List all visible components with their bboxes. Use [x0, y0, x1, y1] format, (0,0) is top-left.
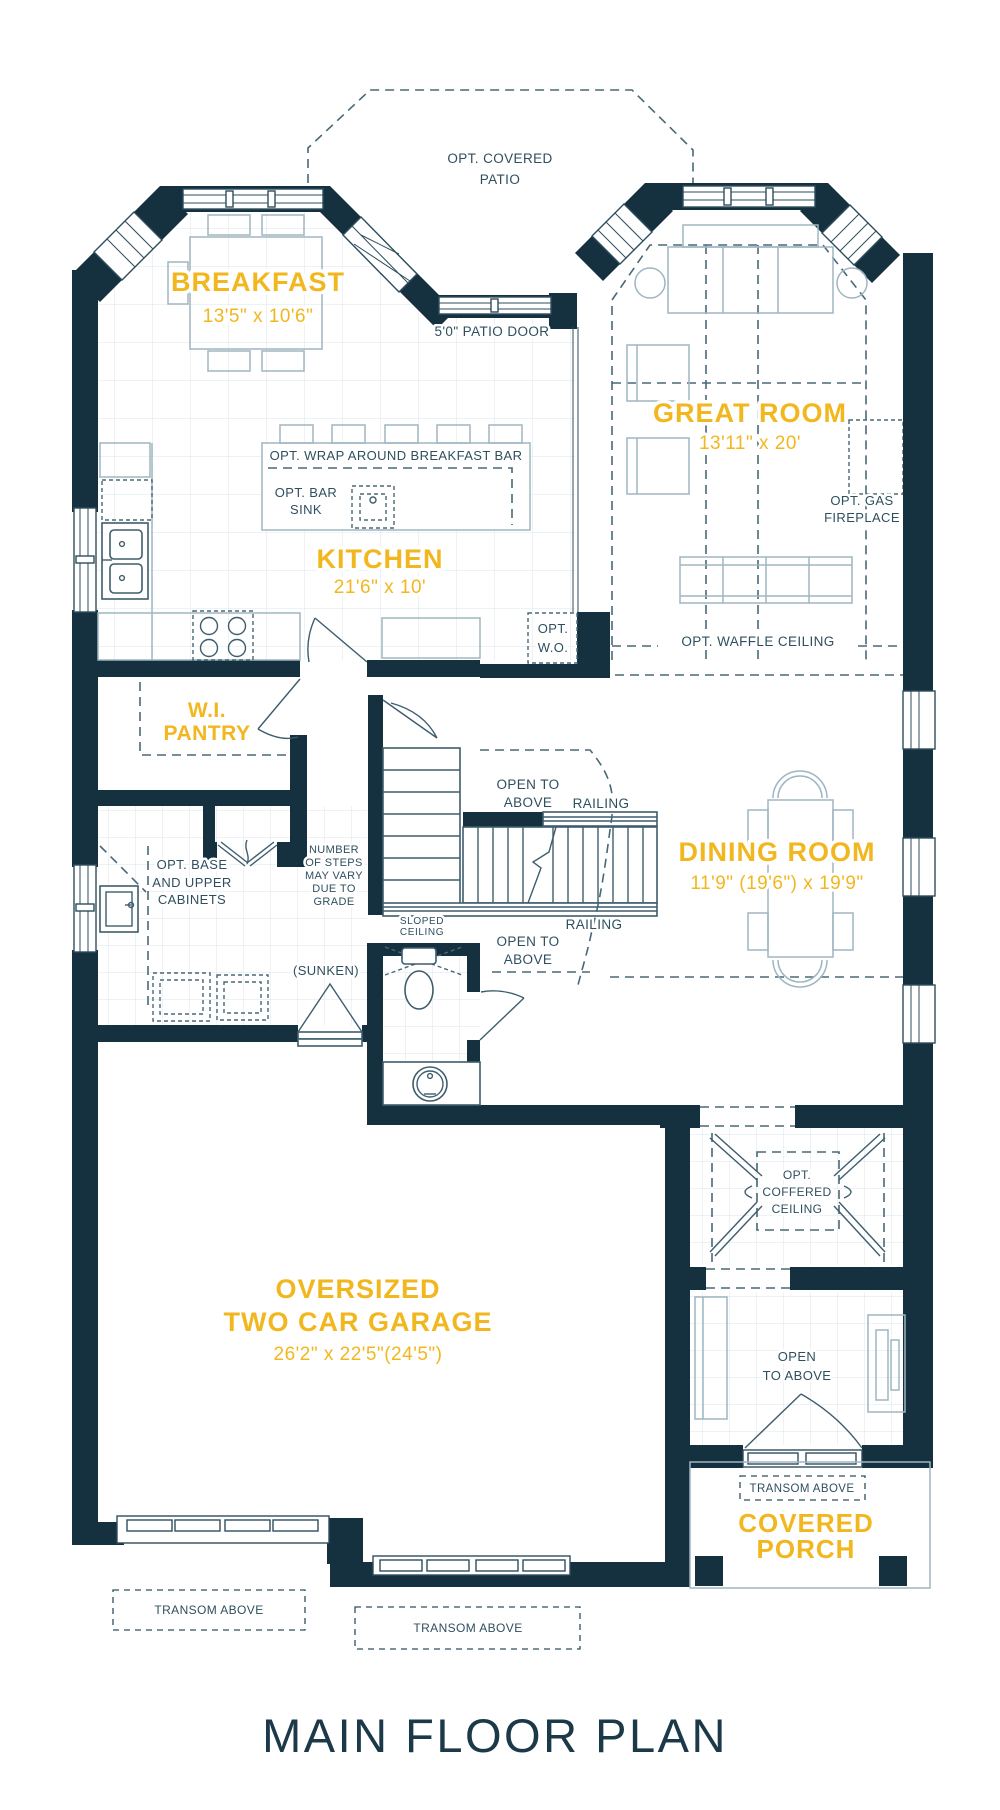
waffle-ceiling-label: OPT. WAFFLE CEILING	[681, 634, 834, 649]
base-cabinets-label: OPT. BASE	[157, 857, 228, 872]
transom-garage-left-label: TRANSOM ABOVE	[154, 1603, 263, 1617]
breakfast-bar-label: OPT. WRAP AROUND BREAKFAST BAR	[270, 448, 523, 463]
sunken-label: (SUNKEN)	[293, 963, 359, 978]
open-above-foyer-label: OPEN	[778, 1349, 816, 1364]
floor-plan-drawing: OPT. COVERED PATIO BREAKFAST 13'5" x 10'…	[0, 0, 1000, 1810]
transom-garage-center-label: TRANSOM ABOVE	[413, 1621, 522, 1635]
steps-note-label: NUMBER	[309, 844, 359, 856]
opt-covered-patio-label2: PATIO	[480, 172, 521, 187]
steps-note-label2: OF STEPS	[305, 857, 363, 869]
garage-door	[117, 1516, 329, 1543]
dining-window-3	[903, 985, 935, 1043]
sloped-ceiling-label2: CEILING	[400, 927, 444, 938]
bar-sink-label: OPT. BAR	[275, 485, 337, 500]
base-cabinets-label3: CABINETS	[158, 892, 226, 907]
walkout-label: OPT.	[538, 621, 569, 636]
kitchen-sink	[102, 523, 148, 599]
garage-label2: TWO CAR GARAGE	[224, 1307, 493, 1337]
kitchen-sink-window	[74, 508, 96, 612]
coffered-ceiling-label2: COFFERED	[762, 1185, 831, 1199]
dining-window-2	[903, 838, 935, 896]
stair-railing-lower	[383, 903, 657, 916]
great-room-bay-window	[683, 186, 815, 207]
steps-note-label5: GRADE	[313, 896, 354, 908]
plan-title: MAIN FLOOR PLAN	[262, 1709, 728, 1762]
open-above-stairs-label: OPEN TO	[496, 777, 559, 792]
gas-fireplace-label: OPT. GAS	[830, 493, 893, 508]
steps-note-label3: MAY VARY	[305, 870, 363, 882]
railing-upper-label: RAILING	[573, 796, 630, 811]
garage-dims: 26'2" x 22'5"(24'5")	[274, 1344, 443, 1365]
great-room-dims: 13'11" x 20'	[699, 433, 801, 454]
patio-door-label: 5'0" PATIO DOOR	[435, 324, 550, 339]
mudroom-window	[74, 865, 96, 952]
pantry-label2: PANTRY	[164, 722, 251, 745]
gas-fireplace-label2: FIREPLACE	[824, 510, 900, 525]
optional-covered-patio-outline	[308, 90, 693, 183]
steps-note-label4: DUE TO	[312, 883, 356, 895]
sloped-ceiling-label: SLOPED	[400, 916, 444, 927]
coffered-ceiling-label: OPT.	[783, 1168, 811, 1182]
dining-room-label: DINING ROOM	[679, 837, 876, 867]
powder-vanity	[383, 1062, 480, 1105]
garage-entry-window-band	[373, 1556, 570, 1575]
powder-door	[480, 991, 524, 1040]
base-cabinets-label2: AND UPPER	[152, 875, 231, 890]
patio-door	[439, 297, 551, 314]
dining-window-1	[903, 691, 935, 749]
floor-plan-page: OPT. COVERED PATIO BREAKFAST 13'5" x 10'…	[0, 0, 1000, 1810]
great-room-label: GREAT ROOM	[653, 398, 847, 428]
open-above-lower-label2: ABOVE	[504, 952, 553, 967]
railing-lower-label: RAILING	[566, 917, 623, 932]
garage-label: OVERSIZED	[275, 1274, 440, 1304]
open-above-stairs-label2: ABOVE	[504, 795, 553, 810]
pantry-label: W.I.	[188, 699, 226, 722]
breakfast-label: BREAKFAST	[171, 267, 345, 297]
breakfast-dims: 13'5" x 10'6"	[203, 306, 314, 327]
dining-room-dims: 11'9" (19'6") x 19'9"	[690, 873, 863, 894]
upper-stair-flight	[383, 700, 460, 905]
utility-sink	[100, 886, 138, 932]
stair-railing-upper	[543, 812, 657, 826]
kitchen-label: KITCHEN	[317, 544, 444, 574]
coffered-ceiling-label3: CEILING	[772, 1202, 823, 1216]
main-stair-flight	[463, 827, 657, 903]
open-above-lower-label: OPEN TO	[496, 934, 559, 949]
open-above-foyer-label2: TO ABOVE	[763, 1368, 832, 1383]
walkout-label2: W.O.	[538, 640, 569, 655]
kitchen-dims: 21'6" x 10'	[334, 577, 426, 598]
bar-sink-label2: SINK	[290, 502, 322, 517]
covered-porch-label2: PORCH	[757, 1534, 856, 1564]
breakfast-bay-window	[183, 189, 323, 209]
transom-porch-label: TRANSOM ABOVE	[750, 1483, 855, 1495]
opt-covered-patio-label: OPT. COVERED	[447, 151, 552, 166]
